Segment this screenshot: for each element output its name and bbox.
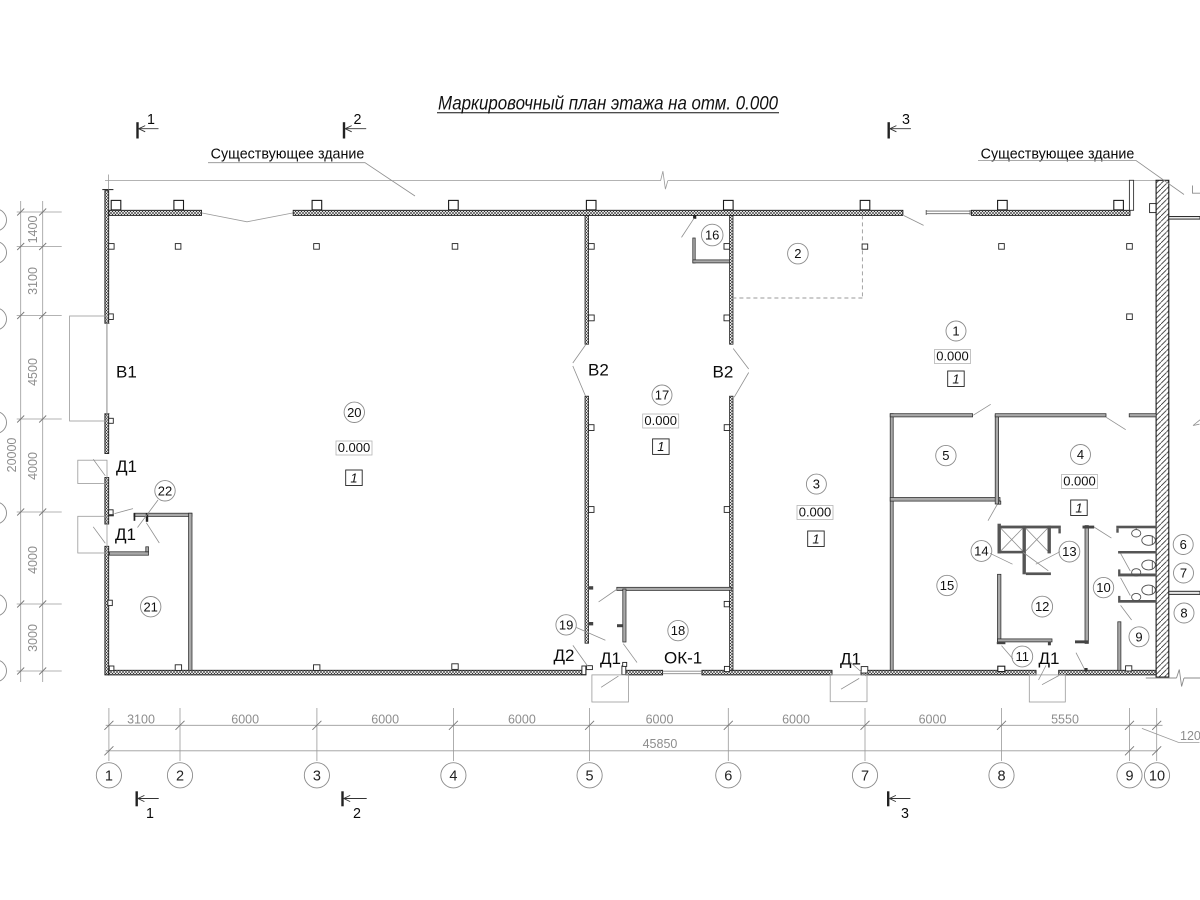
svg-text:22: 22 [158, 483, 172, 498]
svg-text:16: 16 [705, 228, 719, 243]
svg-text:6000: 6000 [508, 713, 536, 727]
svg-text:20000: 20000 [5, 438, 19, 473]
svg-text:5550: 5550 [1051, 713, 1079, 727]
svg-text:17: 17 [655, 388, 669, 403]
svg-text:Д1: Д1 [1039, 649, 1060, 668]
svg-text:0.000: 0.000 [799, 505, 832, 520]
svg-text:В2: В2 [713, 363, 734, 382]
svg-text:120: 120 [1180, 729, 1200, 743]
svg-text:1: 1 [812, 531, 819, 546]
svg-text:9: 9 [1125, 768, 1133, 784]
svg-text:4500: 4500 [26, 358, 40, 386]
svg-text:3000: 3000 [26, 624, 40, 652]
svg-text:10: 10 [1096, 580, 1110, 595]
svg-text:0.000: 0.000 [1063, 474, 1096, 489]
svg-text:ОК-1: ОК-1 [664, 649, 702, 668]
svg-text:1: 1 [952, 371, 959, 386]
svg-text:4000: 4000 [26, 546, 40, 574]
svg-text:6000: 6000 [371, 713, 399, 727]
svg-text:1: 1 [105, 768, 113, 784]
svg-text:7: 7 [1180, 566, 1187, 581]
svg-text:Д1: Д1 [116, 457, 137, 476]
svg-text:6: 6 [1180, 537, 1187, 552]
svg-text:1: 1 [1075, 500, 1082, 515]
svg-text:1: 1 [146, 806, 154, 822]
svg-text:3: 3 [313, 768, 321, 784]
svg-text:6000: 6000 [231, 713, 259, 727]
svg-text:Существующее здание: Существующее здание [211, 147, 365, 163]
svg-text:3: 3 [901, 806, 909, 822]
svg-text:1: 1 [147, 112, 155, 128]
svg-text:12: 12 [1035, 599, 1049, 614]
svg-text:1400: 1400 [26, 216, 40, 244]
svg-text:3: 3 [902, 112, 910, 128]
svg-text:7: 7 [861, 768, 869, 784]
svg-text:6: 6 [724, 768, 732, 784]
svg-text:8: 8 [997, 768, 1005, 784]
svg-text:2: 2 [353, 806, 361, 822]
svg-text:10: 10 [1149, 768, 1165, 784]
svg-text:9: 9 [1135, 629, 1142, 644]
svg-text:11: 11 [1016, 649, 1030, 664]
svg-text:3100: 3100 [26, 267, 40, 295]
svg-text:1: 1 [350, 470, 357, 485]
svg-text:18: 18 [671, 623, 685, 638]
svg-text:2: 2 [176, 768, 184, 784]
svg-text:15: 15 [940, 578, 954, 593]
svg-text:3100: 3100 [127, 713, 155, 727]
svg-text:Д1: Д1 [840, 650, 861, 669]
svg-text:5: 5 [586, 768, 594, 784]
svg-text:0.000: 0.000 [338, 440, 371, 455]
svg-text:1: 1 [952, 324, 959, 339]
svg-text:Д1: Д1 [600, 649, 621, 668]
svg-text:4: 4 [449, 768, 457, 784]
svg-text:0.000: 0.000 [644, 413, 677, 428]
svg-text:20: 20 [347, 405, 361, 420]
svg-text:4000: 4000 [26, 452, 40, 480]
svg-text:6000: 6000 [782, 713, 810, 727]
svg-text:3: 3 [813, 477, 820, 492]
svg-text:Д1: Д1 [115, 525, 136, 544]
svg-text:1: 1 [657, 439, 664, 454]
svg-text:В2: В2 [588, 361, 609, 380]
svg-text:8: 8 [1180, 606, 1187, 621]
svg-text:19: 19 [559, 618, 573, 633]
svg-text:В1: В1 [116, 363, 137, 382]
svg-text:14: 14 [974, 544, 988, 559]
svg-text:4: 4 [1077, 447, 1084, 462]
svg-text:5: 5 [942, 448, 949, 463]
svg-text:21: 21 [143, 599, 157, 614]
svg-text:13: 13 [1062, 544, 1076, 559]
svg-text:45850: 45850 [643, 737, 678, 751]
svg-text:Д2: Д2 [554, 646, 575, 665]
svg-text:6000: 6000 [919, 713, 947, 727]
svg-text:0.000: 0.000 [936, 349, 969, 364]
svg-text:2: 2 [354, 112, 362, 128]
svg-text:2: 2 [794, 246, 801, 261]
svg-text:Маркировочный план этажа на от: Маркировочный план этажа на отм. 0.000 [438, 94, 778, 115]
svg-text:6000: 6000 [646, 713, 674, 727]
